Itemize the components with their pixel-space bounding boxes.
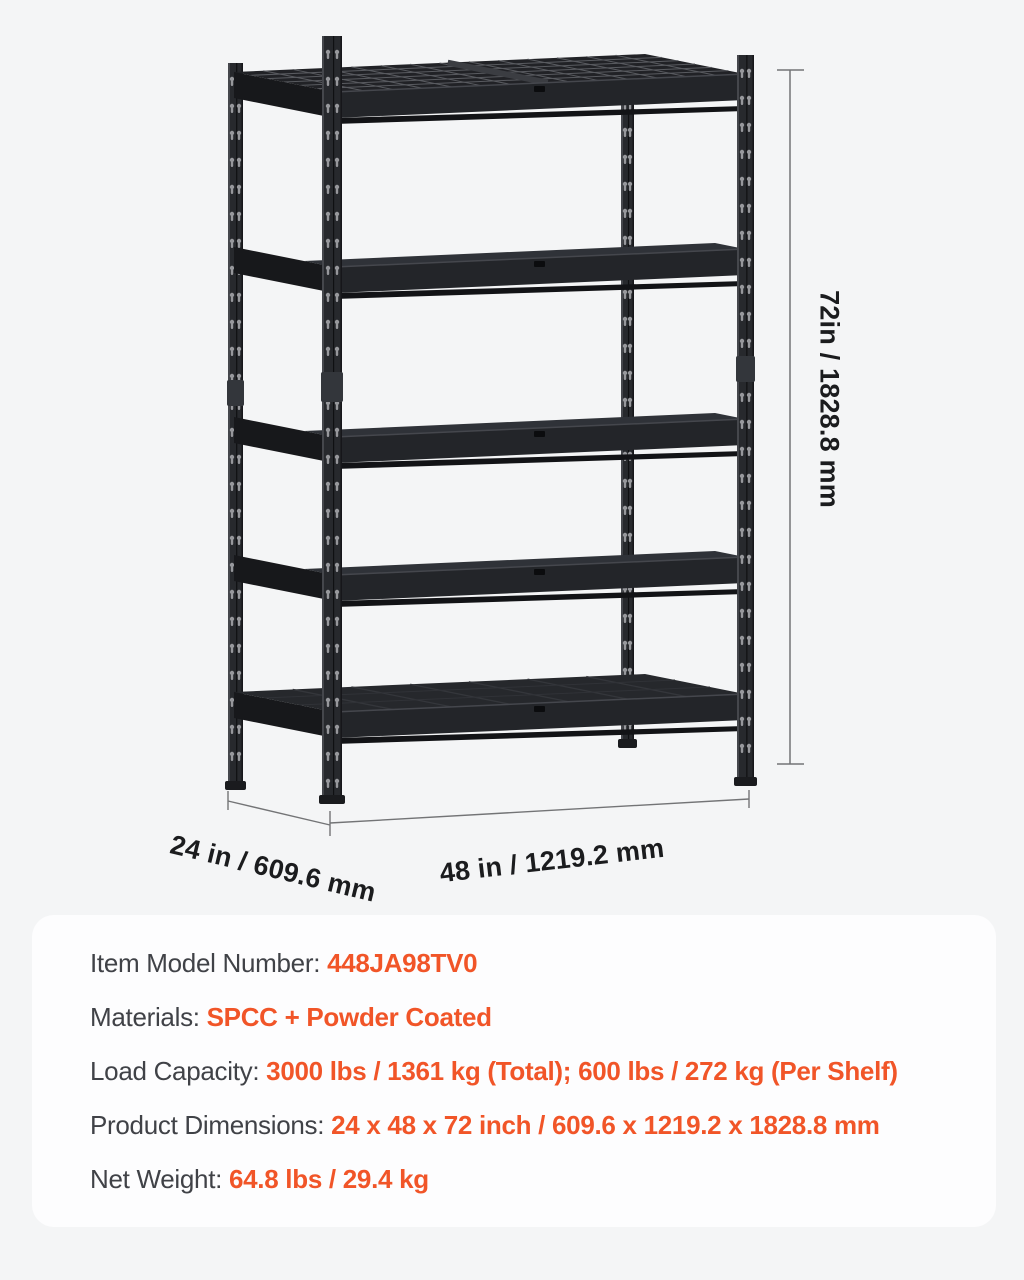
spec-label: Load Capacity: — [90, 1056, 266, 1086]
spec-row-dimensions: Product Dimensions: 24 x 48 x 72 inch / … — [90, 1111, 968, 1139]
height-dimension-label: 72in / 1828.8 mm — [814, 290, 845, 508]
spec-row-materials: Materials: SPCC + Powder Coated — [90, 1003, 968, 1031]
spec-label: Materials: — [90, 1002, 207, 1032]
spec-value: SPCC + Powder Coated — [207, 1002, 492, 1032]
spec-label: Net Weight: — [90, 1164, 229, 1194]
spec-panel: Item Model Number: 448JA98TV0 Materials:… — [32, 915, 996, 1227]
spec-row-net-weight: Net Weight: 64.8 lbs / 29.4 kg — [90, 1165, 968, 1193]
spec-value: 3000 lbs / 1361 kg (Total); 600 lbs / 27… — [266, 1056, 898, 1086]
spec-label: Product Dimensions: — [90, 1110, 331, 1140]
product-figure-page: 72in / 1828.8 mm 24 in / 609.6 mm 48 in … — [0, 0, 1024, 1280]
spec-value: 448JA98TV0 — [327, 948, 477, 978]
spec-value: 64.8 lbs / 29.4 kg — [229, 1164, 429, 1194]
shelving-rack-illustration — [0, 0, 1024, 910]
spec-label: Item Model Number: — [90, 948, 327, 978]
spec-row-model: Item Model Number: 448JA98TV0 — [90, 949, 968, 977]
spec-value: 24 x 48 x 72 inch / 609.6 x 1219.2 x 182… — [331, 1110, 880, 1140]
spec-row-load-capacity: Load Capacity: 3000 lbs / 1361 kg (Total… — [90, 1057, 968, 1085]
